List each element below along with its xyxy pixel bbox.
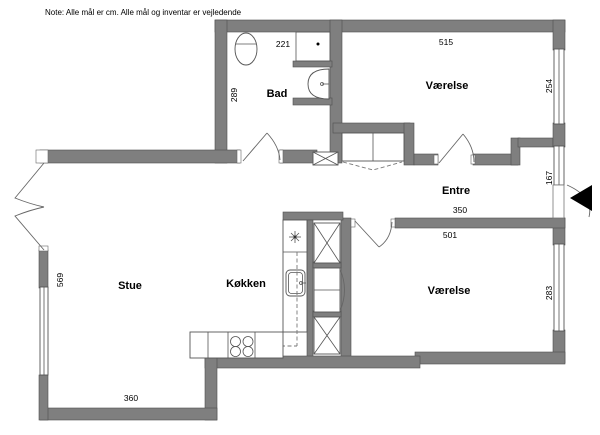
wall-right-2 [553, 123, 565, 147]
wall-vaerelse2-left [341, 218, 351, 363]
dim-stue-depth: 569 [55, 273, 65, 287]
entrance-door [553, 185, 592, 218]
dim-bad-depth: 289 [229, 88, 239, 102]
wall-closet-divider [307, 220, 313, 360]
kitchen-counter-bottom [190, 332, 283, 358]
room-label-stue: Stue [118, 280, 142, 292]
note-text: Note: Alle mål er cm. Alle mål og invent… [45, 8, 242, 17]
entrance-arrow-icon [570, 185, 592, 211]
toilet [235, 33, 257, 65]
room-label-bad: Bad [267, 88, 288, 100]
wall-top [215, 20, 565, 32]
tall-cabinet-1 [314, 223, 340, 263]
fridge-cabinet [314, 268, 345, 312]
bathroom-sink [308, 69, 329, 99]
tall-cabinet-2 [314, 317, 340, 354]
dim-entre-width: 350 [453, 205, 467, 215]
room-label-vaerelse-top: Værelse [426, 80, 469, 92]
shower [296, 32, 330, 61]
wall-bad-right [330, 20, 342, 163]
window-stue [40, 287, 48, 375]
wall-stue-left-mid [39, 250, 48, 288]
entre-wardrobe [342, 133, 404, 170]
dim-vaerelse-top-width: 515 [439, 37, 453, 47]
bad-door [237, 133, 283, 164]
wall-stue-bottom [40, 408, 217, 420]
cabinet-column [314, 223, 345, 354]
wall-bad-left [215, 20, 227, 163]
wall-vaerelse-bottom-a [333, 123, 410, 133]
wall-entre-bottom [395, 218, 565, 228]
vent-shaft [313, 152, 338, 165]
vaerelse-top-door [434, 134, 475, 164]
window-vaerelse-top [554, 49, 564, 124]
room-label-entre: Entre [442, 185, 470, 197]
dim-vaerelse-bottom-window: 283 [544, 286, 554, 300]
dim-vaerelse-bottom-width: 501 [443, 230, 457, 240]
dim-bad-width: 221 [276, 39, 290, 49]
stue-french-doors [15, 150, 48, 251]
dim-stue-width: 360 [124, 393, 138, 403]
wall-stue-left-lower [39, 375, 48, 420]
wall-vaerelse-connector-a [404, 123, 414, 165]
kitchen-sink [286, 270, 306, 296]
wall-kitchen-top [283, 212, 343, 220]
dim-vaerelse-top-window: 254 [544, 79, 554, 93]
window-entre [554, 146, 564, 185]
dim-entre-window: 167 [544, 171, 554, 185]
room-label-koekken: Køkken [226, 278, 266, 290]
floor-plan: Note: Alle mål er cm. Alle mål og invent… [0, 0, 600, 435]
wall-bottom-right [415, 352, 565, 364]
wall-vaerelse-bottom-d [518, 138, 553, 147]
wall-right-1 [553, 20, 565, 50]
wall-shower-stub [293, 61, 332, 67]
window-vaerelse-bottom [554, 244, 564, 331]
vaerelse-bottom-door [351, 219, 395, 247]
room-label-vaerelse-bottom: Værelse [428, 285, 471, 297]
